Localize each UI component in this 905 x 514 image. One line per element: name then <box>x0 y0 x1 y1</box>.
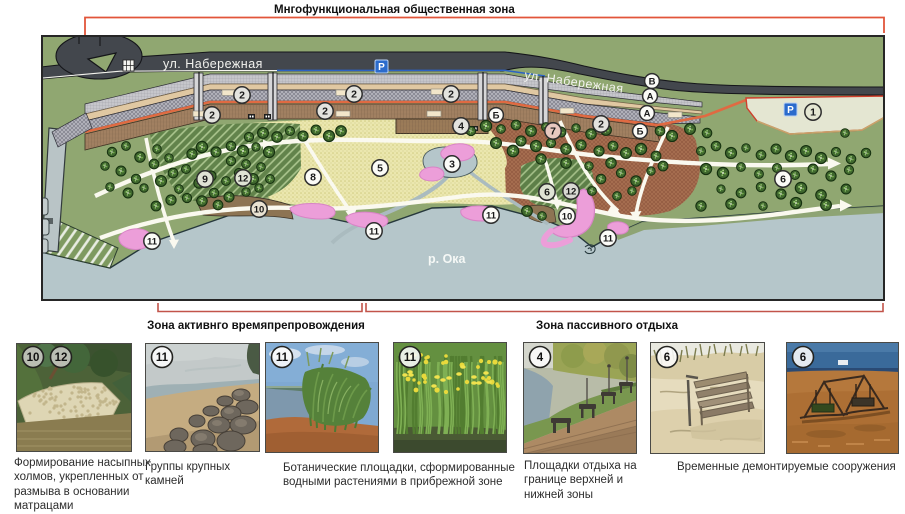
svg-text:А: А <box>647 92 654 103</box>
svg-text:10: 10 <box>562 212 573 223</box>
svg-text:А: А <box>644 109 651 120</box>
svg-text:р. Ока: р. Ока <box>428 252 467 266</box>
svg-text:6: 6 <box>664 352 670 364</box>
svg-text:5: 5 <box>377 163 383 175</box>
svg-text:Б: Б <box>493 111 500 122</box>
svg-text:4: 4 <box>537 352 544 364</box>
svg-text:11: 11 <box>369 227 380 238</box>
svg-text:4: 4 <box>458 121 464 133</box>
svg-text:ул. Набережная: ул. Набережная <box>163 57 263 71</box>
svg-text:1: 1 <box>810 107 816 119</box>
svg-text:11: 11 <box>603 234 614 245</box>
svg-text:12: 12 <box>238 174 249 185</box>
svg-text:2: 2 <box>351 89 357 101</box>
svg-text:10: 10 <box>27 352 40 364</box>
svg-text:11: 11 <box>404 352 417 364</box>
svg-text:2: 2 <box>239 90 245 102</box>
svg-text:11: 11 <box>276 352 289 364</box>
svg-text:Б: Б <box>637 127 644 138</box>
svg-text:P: P <box>378 62 385 73</box>
svg-text:9: 9 <box>202 174 208 186</box>
svg-text:11: 11 <box>156 352 169 364</box>
svg-text:6: 6 <box>780 174 786 186</box>
svg-text:6: 6 <box>544 187 550 199</box>
svg-text:12: 12 <box>55 352 68 364</box>
svg-text:2: 2 <box>448 89 454 101</box>
svg-text:2: 2 <box>322 106 328 118</box>
svg-text:3: 3 <box>449 159 455 171</box>
svg-text:8: 8 <box>310 172 316 184</box>
svg-text:2: 2 <box>209 110 215 122</box>
svg-text:11: 11 <box>147 237 158 248</box>
svg-text:12: 12 <box>566 187 577 198</box>
svg-text:2: 2 <box>598 119 604 131</box>
svg-text:В: В <box>649 77 656 88</box>
svg-text:7: 7 <box>550 126 556 138</box>
svg-text:10: 10 <box>254 205 265 216</box>
svg-text:6: 6 <box>800 352 806 364</box>
svg-text:P: P <box>787 105 794 116</box>
svg-text:11: 11 <box>486 211 497 222</box>
